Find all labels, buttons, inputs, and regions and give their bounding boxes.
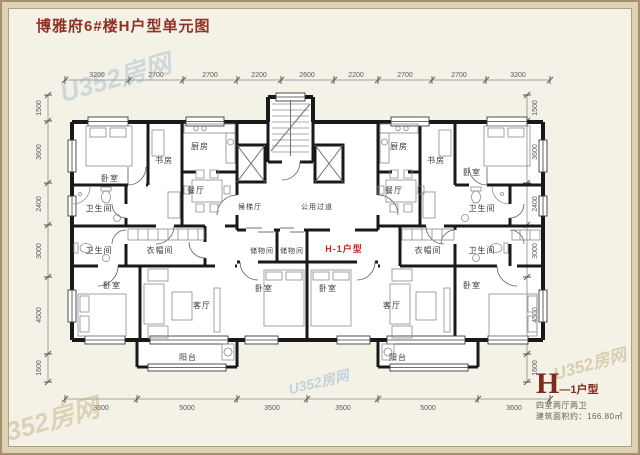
dim-left: 4500	[36, 307, 43, 323]
dim-bottom: 3500	[335, 405, 351, 412]
page-title: 博雅府6#楼H户型单元图	[36, 15, 211, 36]
dim-right: 3000	[532, 243, 539, 259]
room-label-bath-right-lower: 卫生间	[469, 245, 496, 255]
unit-layout-text: 四室两厅两卫	[536, 402, 623, 410]
dim-top: 2700	[397, 72, 413, 79]
room-label-study-left: 书房	[155, 155, 173, 165]
dim-bottom: 5000	[179, 405, 195, 412]
floorplan-page: 博雅府6#楼H户型单元图 U352房网 U352房网 U352房网 U352房网…	[0, 0, 640, 455]
dim-top: 3200	[89, 72, 105, 79]
dim-bottom: 5000	[420, 405, 436, 412]
unit-type-tag: H-1户型	[325, 243, 363, 254]
room-label-kitchen-right: 厨房	[390, 141, 408, 151]
room-label-bedroom-center-left: 卧室	[255, 283, 273, 293]
room-label-bedroom-center-right: 卧室	[319, 283, 337, 293]
dim-top: 2700	[148, 72, 164, 79]
room-label-elevator-lobby: 候梯厅	[238, 202, 262, 211]
room-label-living-right: 客厅	[383, 300, 401, 310]
dim-top: 2700	[202, 72, 218, 79]
room-label-balcony-right: 阳台	[389, 352, 407, 362]
room-label-bedroom-mid-right: 卧室	[463, 280, 481, 290]
dim-left: 1600	[36, 360, 43, 376]
dim-left: 3600	[36, 144, 43, 160]
room-label-bedroom-top-right: 卧室	[463, 167, 481, 177]
unit-info-block: H—1户型 四室两厅两卫 建筑面积约：166.80㎡	[536, 369, 623, 421]
dim-left: 1500	[36, 100, 43, 116]
dim-right: 4500	[532, 307, 539, 323]
room-label-dining-right: 餐厅	[385, 186, 403, 195]
room-label-bath-left-lower: 卫生间	[86, 245, 113, 255]
room-label-cloakroom-right: 衣帽间	[415, 245, 442, 255]
unit-type-letter: H	[536, 367, 559, 400]
dimension-bottom: 3600 5000 3500 3500 5000 3600	[62, 395, 553, 412]
room-label-bedroom-mid-left: 卧室	[103, 280, 121, 290]
dim-top: 3200	[510, 72, 526, 79]
room-label-bath-left-upper: 卫生间	[86, 203, 113, 213]
room-label-public-corridor: 公用过道	[301, 202, 333, 211]
dimension-top: 3200 2700 2700 2200 2600 2200 2700 2700 …	[62, 72, 553, 84]
room-label-study-right: 书房	[427, 155, 445, 165]
room-label-balcony-left: 阳台	[179, 352, 197, 362]
room-label-living-left: 客厅	[193, 300, 211, 310]
dim-bottom: 3600	[506, 405, 522, 412]
dim-top: 2600	[299, 72, 315, 79]
room-label-dining-left: 餐厅	[187, 186, 205, 195]
dim-left: 3000	[36, 243, 43, 259]
dimension-left: 1500 3600 2400 3000 4500 1600	[36, 92, 52, 385]
dim-top: 2700	[451, 72, 467, 79]
room-label-cloakroom-left: 衣帽间	[147, 245, 174, 255]
unit-area-text: 建筑面积约：166.80㎡	[536, 413, 623, 421]
dim-right: 1500	[532, 100, 539, 116]
dim-left: 2400	[36, 196, 43, 212]
room-label-storage-right: 储物间	[280, 246, 304, 255]
dim-right: 2400	[532, 196, 539, 212]
room-label-bath-right-upper: 卫生间	[469, 203, 496, 213]
room-label-kitchen-left: 厨房	[191, 141, 209, 151]
dim-top: 2200	[251, 72, 267, 79]
dim-bottom: 3500	[264, 405, 280, 412]
dim-right: 3600	[532, 144, 539, 160]
dim-bottom: 3600	[93, 405, 109, 412]
room-label-bedroom-top-left: 卧室	[101, 173, 119, 183]
unit-type-suffix: —1户型	[559, 384, 598, 396]
room-label-storage-left: 储物间	[250, 246, 274, 255]
dim-top: 2200	[348, 72, 364, 79]
